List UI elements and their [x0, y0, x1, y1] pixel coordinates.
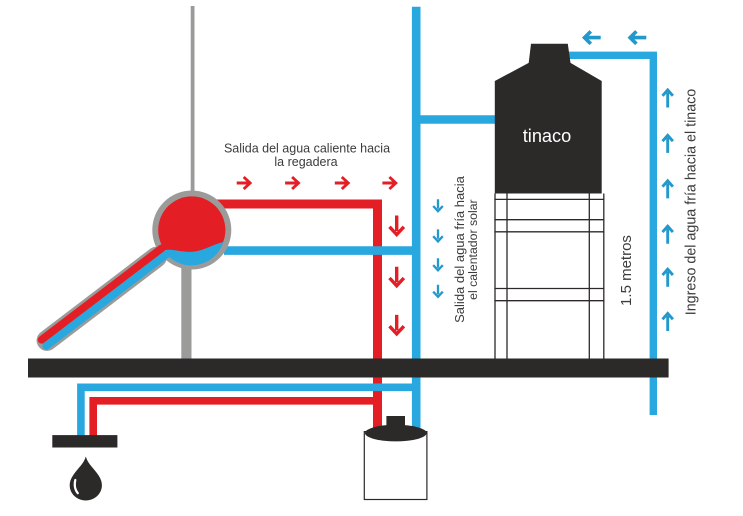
svg-text:Ingreso del agua fría hacia el: Ingreso del agua fría hacia el tinaco — [684, 89, 700, 316]
svg-text:1.5 metros: 1.5 metros — [618, 235, 635, 306]
svg-text:el calentador solar: el calentador solar — [466, 199, 480, 299]
svg-text:la regadera: la regadera — [274, 155, 337, 169]
svg-text:Salida del agua caliente hacia: Salida del agua caliente hacia — [224, 141, 390, 155]
svg-text:Salida del agua fría hacia: Salida del agua fría hacia — [452, 175, 467, 322]
svg-text:tinaco: tinaco — [523, 126, 572, 146]
